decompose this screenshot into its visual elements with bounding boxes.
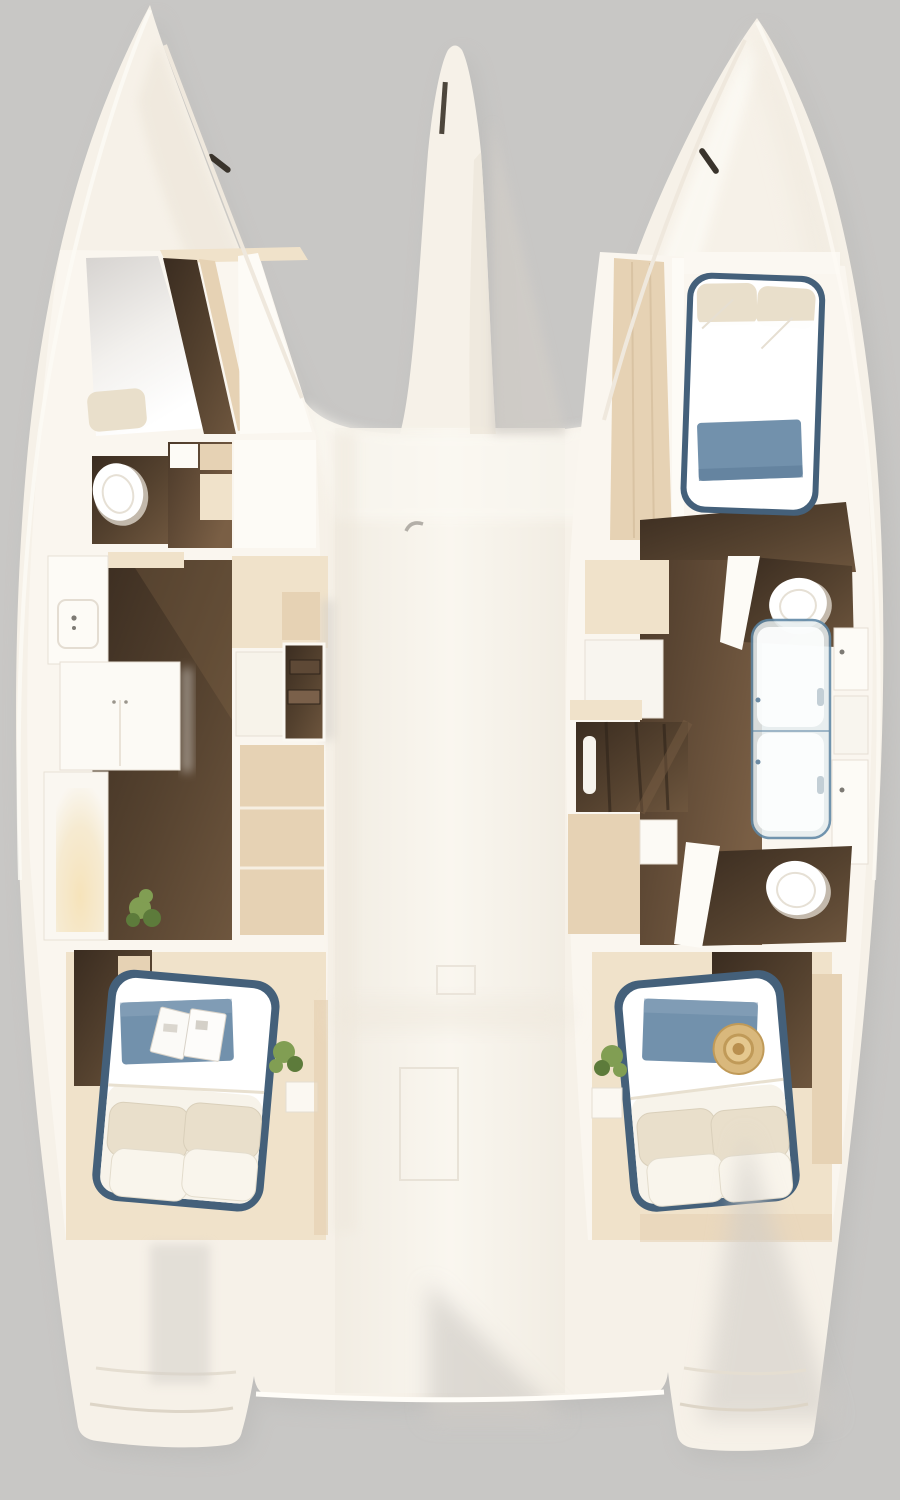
shower-head-icon — [817, 776, 824, 794]
shower-enclosure — [752, 620, 830, 838]
berth-pillow — [86, 388, 147, 433]
stbd-aft-cabin — [592, 952, 842, 1242]
aft-side-trim — [314, 1000, 328, 1235]
shower-tray — [757, 627, 824, 727]
port-aft-cabin — [66, 950, 328, 1240]
shower-handle — [756, 698, 761, 703]
pantry-lamp-glow — [56, 788, 104, 932]
magazine-print — [195, 1020, 208, 1030]
island-handle — [124, 700, 128, 704]
head-cabinet-b — [200, 474, 232, 520]
catamaran-floorplan — [0, 0, 900, 1500]
stbd-hull-interior — [566, 252, 873, 1242]
faucet-icon — [840, 650, 845, 655]
stair-tread — [290, 660, 320, 674]
pillow — [646, 1153, 726, 1207]
transom-shade-left — [150, 1244, 210, 1384]
port-head — [87, 440, 316, 548]
faucet-icon — [72, 626, 76, 630]
aft-bed — [612, 968, 802, 1214]
magazine-print — [163, 1023, 178, 1032]
head-partition — [234, 440, 316, 548]
vanity — [834, 628, 868, 690]
throw-blanket — [697, 419, 803, 481]
faucet-icon — [71, 615, 76, 620]
bath-cabinet-a — [585, 560, 669, 634]
shower-tray — [757, 733, 824, 831]
island-shadow — [182, 668, 192, 772]
head-cabinet-white — [170, 444, 198, 468]
port-companionway — [282, 592, 336, 740]
companionway-rim — [282, 592, 320, 640]
aft-bed — [90, 968, 282, 1214]
pillow — [109, 1147, 191, 1202]
fwd-partition — [672, 258, 684, 546]
head-cabinet-a — [200, 444, 232, 470]
magazine — [183, 1009, 226, 1062]
port-hull-interior — [27, 247, 328, 1240]
faucet-icon — [840, 788, 845, 793]
stair-tread — [288, 690, 320, 704]
deck-cross-shade — [335, 1002, 570, 1028]
pillow — [181, 1148, 259, 1202]
floorplan-render — [0, 0, 900, 1500]
grab-rail — [583, 736, 596, 794]
aft-shelf — [812, 974, 842, 1164]
companionway-rim — [570, 700, 642, 720]
shower-head-icon — [817, 688, 824, 706]
deck-edge-shade — [333, 432, 357, 1232]
fwd-bed — [680, 272, 826, 517]
vanity — [834, 696, 868, 754]
bath-sink-cabinet — [640, 820, 677, 864]
bath-cabinet-c — [568, 814, 640, 934]
shower-handle — [756, 760, 761, 765]
nightstand — [592, 1088, 622, 1118]
stbd-forward-cabin — [610, 252, 856, 576]
galley-cabinet-low — [240, 745, 324, 935]
headboard-shelf — [684, 252, 840, 274]
nightstand — [286, 1082, 318, 1112]
island-handle — [112, 700, 116, 704]
bridge-deck — [335, 428, 565, 1393]
galley-upper-strip — [108, 552, 184, 568]
stbd-bathroom — [568, 556, 868, 948]
